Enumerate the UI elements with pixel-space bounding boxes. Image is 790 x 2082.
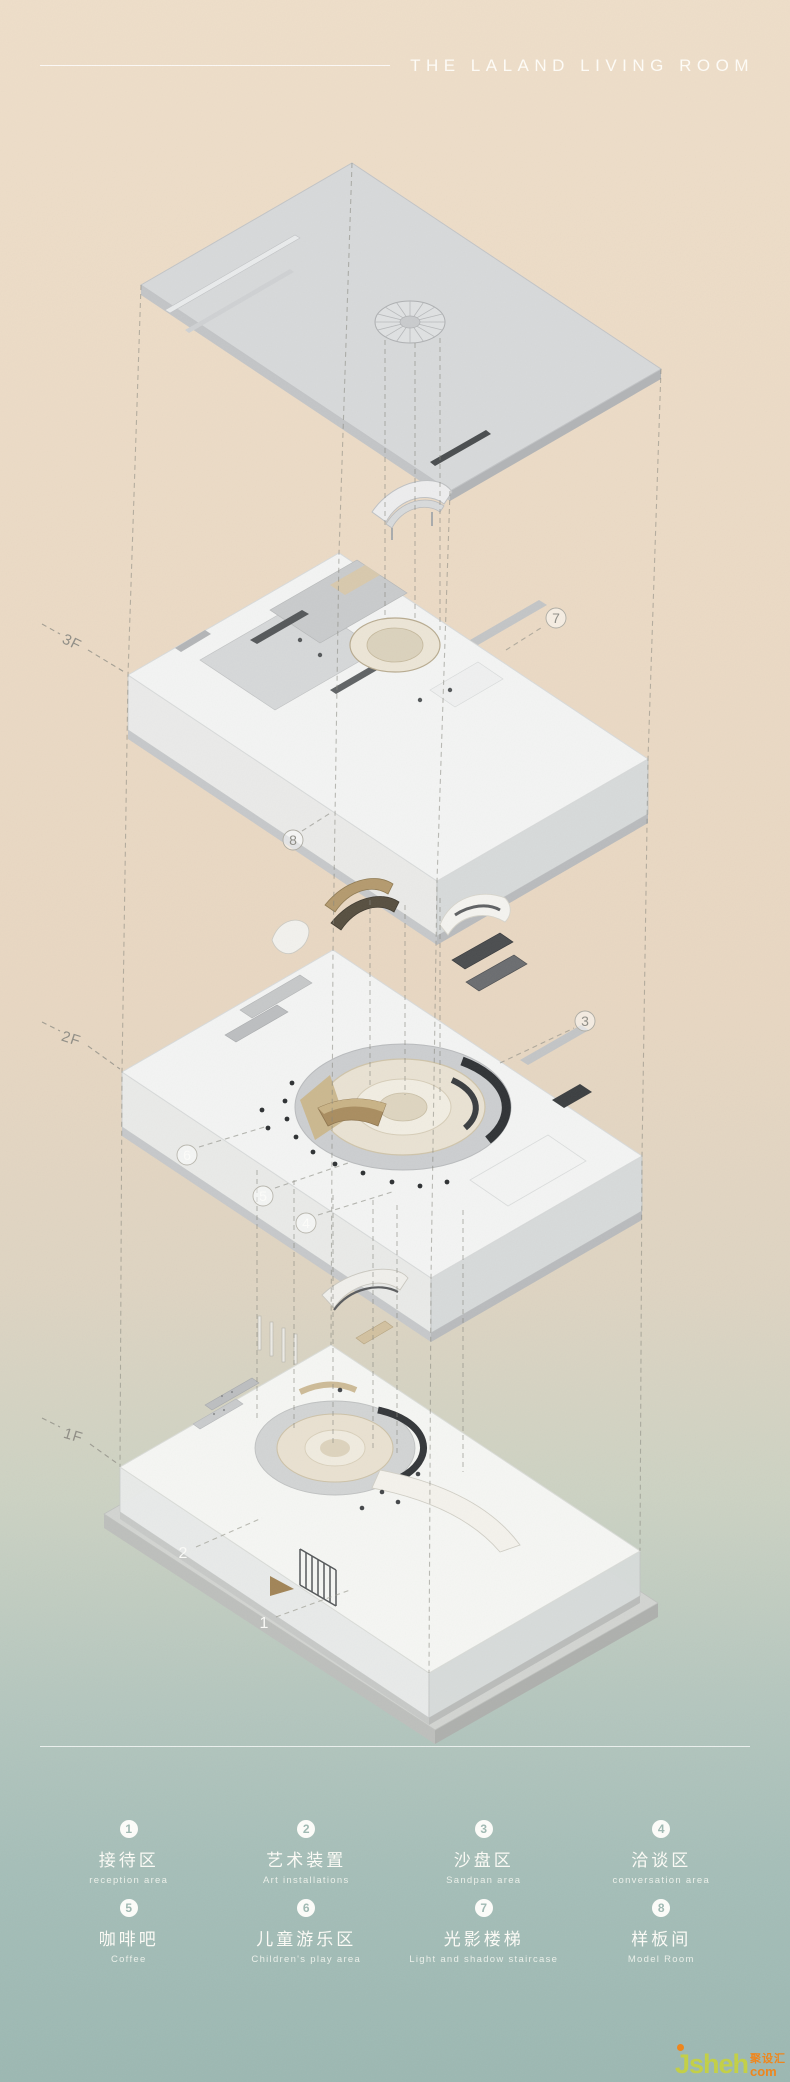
legend-item-conversation: 4 洽谈区 conversation area: [573, 1820, 751, 1886]
exploded-axonometric-diagram: 3F 2F 1F 7 8: [0, 0, 790, 2082]
legend-label-zh: 洽谈区: [631, 1846, 691, 1871]
legend-label-en: Coffee: [111, 1954, 147, 1965]
svg-text:3: 3: [581, 1013, 589, 1029]
legend-number-badge: 3: [475, 1820, 493, 1838]
roof-radial-skylight: [375, 301, 445, 343]
roof-plate: [141, 163, 661, 501]
legend-item-childrens-play: 6 儿童游乐区 Children's play area: [218, 1899, 396, 1965]
floor-label-1f: 1F: [42, 1418, 118, 1464]
svg-text:2F: 2F: [59, 1028, 83, 1050]
svg-text:2: 2: [179, 1545, 188, 1562]
legend-number-badge: 7: [475, 1899, 493, 1917]
legend-row-2: 5 咖啡吧 Coffee 6 儿童游乐区 Children's play are…: [40, 1899, 750, 1965]
legend-label-zh: 样板间: [631, 1925, 691, 1950]
legend-label-zh: 光影楼梯: [444, 1925, 524, 1950]
svg-text:5: 5: [259, 1188, 267, 1204]
legend-label-en: Model Room: [628, 1954, 695, 1965]
svg-text:7: 7: [552, 610, 560, 626]
legend-label-zh: 沙盘区: [454, 1846, 514, 1871]
legend-label-zh: 咖啡吧: [99, 1925, 159, 1950]
svg-text:8: 8: [289, 832, 297, 848]
legend-label-en: Sandpan area: [446, 1875, 521, 1886]
legend-divider-line: [40, 1746, 750, 1747]
legend-item-light-shadow-staircase: 7 光影楼梯 Light and shadow staircase: [395, 1899, 573, 1965]
svg-text:1: 1: [260, 1615, 269, 1632]
poster-page: THE LALAND LIVING ROOM: [0, 0, 790, 2082]
legend-row-1: 1 接待区 reception area 2 艺术装置 Art installa…: [40, 1820, 750, 1886]
page-title: THE LALAND LIVING ROOM: [410, 56, 754, 76]
callout-3: 3: [500, 1011, 595, 1063]
watermark-tld: com: [750, 2065, 777, 2078]
legend-label-en: conversation area: [612, 1875, 710, 1886]
legend-item-art-installations: 2 艺术装置 Art installations: [218, 1820, 396, 1886]
legend-label-zh: 艺术装置: [266, 1846, 346, 1871]
legend-label-en: Light and shadow staircase: [409, 1954, 558, 1965]
svg-text:1F: 1F: [61, 1425, 85, 1447]
svg-text:3F: 3F: [59, 631, 84, 655]
legend-label-en: Children's play area: [251, 1954, 361, 1965]
watermark-logo: Jsheh 聚设汇 com: [675, 2051, 786, 2078]
legend-label-en: Art installations: [263, 1875, 350, 1886]
legend-label-zh: 接待区: [99, 1846, 159, 1871]
legend-item-sandpan: 3 沙盘区 Sandpan area: [395, 1820, 573, 1886]
legend-item-model-room: 8 样板间 Model Room: [573, 1899, 751, 1965]
legend-number-badge: 4: [652, 1820, 670, 1838]
legend-number-badge: 2: [297, 1820, 315, 1838]
watermark-site-name: Jsheh: [675, 2051, 748, 2078]
legend-number-badge: 6: [297, 1899, 315, 1917]
legend-number-badge: 1: [120, 1820, 138, 1838]
legend-number-badge: 5: [120, 1899, 138, 1917]
floor-labels: 3F 2F 1F: [42, 624, 126, 1464]
header-rule-line: [40, 65, 390, 66]
legend-label-zh: 儿童游乐区: [256, 1925, 356, 1950]
watermark-dot-icon: [677, 2044, 684, 2051]
legend-item-coffee: 5 咖啡吧 Coffee: [40, 1899, 218, 1965]
legend-label-en: reception area: [89, 1875, 168, 1886]
floor-label-2f: 2F: [42, 1022, 120, 1069]
floor-label-3f: 3F: [42, 624, 126, 673]
svg-text:4: 4: [302, 1215, 310, 1231]
legend-number-badge: 8: [652, 1899, 670, 1917]
svg-text:6: 6: [183, 1147, 191, 1163]
legend-item-reception: 1 接待区 reception area: [40, 1820, 218, 1886]
